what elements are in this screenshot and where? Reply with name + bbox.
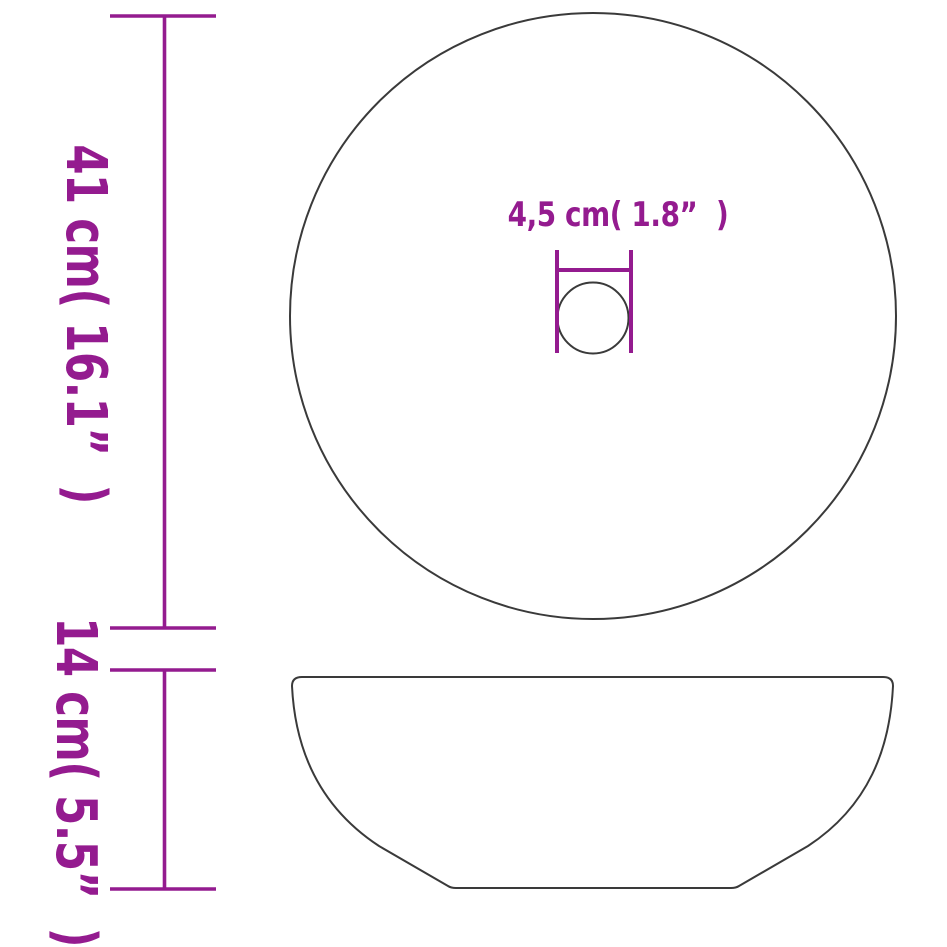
drain-hole-outline [558,283,629,354]
diagram-artwork [0,0,947,947]
basin-side-view-outline [292,677,893,888]
washbasin-dimension-diagram: 41 cm( 16.1” ) 14 cm( 5.5” ) 4,5 cm( 1.8… [0,0,947,947]
basin-top-view-outline [290,13,896,619]
diameter-dimension [110,16,216,628]
drain-diameter-label: 4,5 cm( 1.8” ) [508,198,729,232]
height-dimension [110,670,216,889]
height-label: 14 cm( 5.5” ) [47,617,103,947]
drain-dimension [555,250,633,353]
diameter-label: 41 cm( 16.1” ) [57,144,113,504]
